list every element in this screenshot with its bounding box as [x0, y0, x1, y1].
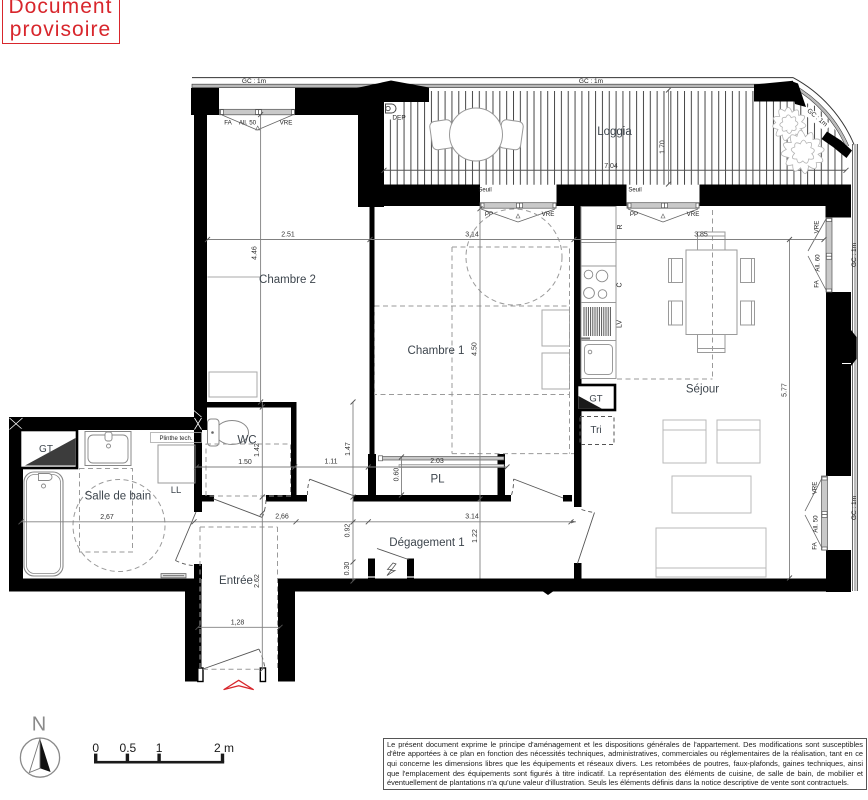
svg-text:2.51: 2.51 [281, 232, 295, 239]
svg-text:Loggia: Loggia [597, 126, 632, 138]
svg-text:2.03: 2.03 [430, 458, 444, 465]
svg-text:0: 0 [92, 741, 99, 755]
svg-text:1.47: 1.47 [345, 442, 352, 456]
svg-text:GC : 1m: GC : 1m [851, 243, 858, 267]
svg-text:1: 1 [156, 741, 163, 755]
svg-text:2,67: 2,67 [100, 514, 114, 521]
svg-text:GT: GT [589, 394, 602, 405]
svg-text:5.77: 5.77 [782, 383, 789, 397]
svg-text:2 m: 2 m [214, 741, 234, 755]
svg-text:VRE: VRE [542, 211, 555, 218]
svg-text:PP: PP [630, 211, 638, 218]
svg-text:GC : 1m: GC : 1m [579, 78, 603, 85]
svg-text:GC : 1m: GC : 1m [851, 496, 858, 520]
svg-text:0.30: 0.30 [344, 562, 351, 576]
svg-text:Entrée: Entrée [219, 575, 253, 587]
svg-text:GT: GT [39, 444, 53, 455]
svg-text:N: N [32, 714, 46, 736]
svg-text:VRE: VRE [814, 221, 821, 234]
svg-text:PP: PP [485, 211, 493, 218]
svg-text:All. 50: All. 50 [239, 120, 257, 127]
svg-text:DEP: DEP [392, 115, 405, 122]
svg-text:7.04: 7.04 [604, 163, 618, 170]
svg-text:1.22: 1.22 [472, 529, 479, 543]
svg-text:0.60: 0.60 [394, 468, 401, 482]
svg-text:2.62: 2.62 [254, 574, 261, 588]
svg-text:Séjour: Séjour [686, 384, 719, 396]
svg-text:C: C [617, 282, 624, 287]
svg-text:LL: LL [171, 485, 182, 496]
svg-text:3.14: 3.14 [465, 232, 479, 239]
svg-text:LV: LV [617, 320, 624, 328]
svg-text:FA: FA [224, 120, 232, 127]
svg-text:GC : 1m: GC : 1m [242, 78, 266, 85]
svg-text:Chambre 1: Chambre 1 [408, 345, 465, 357]
svg-text:1.70: 1.70 [660, 140, 667, 154]
svg-text:0.5: 0.5 [120, 741, 137, 755]
svg-text:FA: FA [814, 279, 821, 287]
svg-text:Seuil: Seuil [628, 188, 641, 194]
svg-text:Tri: Tri [590, 425, 601, 436]
svg-text:All. 50: All. 50 [813, 515, 820, 533]
svg-text:2,66: 2,66 [275, 514, 289, 521]
svg-text:1.11: 1.11 [324, 459, 337, 466]
svg-text:3.85: 3.85 [694, 232, 708, 239]
svg-text:4.50: 4.50 [472, 342, 479, 356]
svg-text:0.92: 0.92 [345, 524, 352, 538]
svg-text:1.50: 1.50 [238, 459, 252, 466]
svg-text:3.14: 3.14 [465, 514, 479, 521]
svg-text:Dégagement 1: Dégagement 1 [389, 537, 464, 549]
svg-text:1,28: 1,28 [231, 620, 245, 627]
svg-text:VRE: VRE [812, 482, 819, 495]
svg-text:PL: PL [430, 474, 445, 486]
svg-text:1.42: 1.42 [254, 443, 261, 457]
svg-text:R: R [617, 224, 624, 229]
svg-text:Seuil: Seuil [478, 188, 491, 194]
svg-text:All. 60: All. 60 [815, 254, 822, 272]
svg-text:VRE: VRE [687, 211, 700, 218]
svg-text:FA: FA [812, 541, 819, 549]
svg-text:Chambre 2: Chambre 2 [259, 274, 316, 286]
svg-text:VRE: VRE [280, 120, 293, 127]
svg-text:4.46: 4.46 [252, 246, 259, 260]
svg-text:Plinthe tech.: Plinthe tech. [159, 436, 192, 442]
svg-text:Salle de bain: Salle de bain [85, 491, 152, 503]
